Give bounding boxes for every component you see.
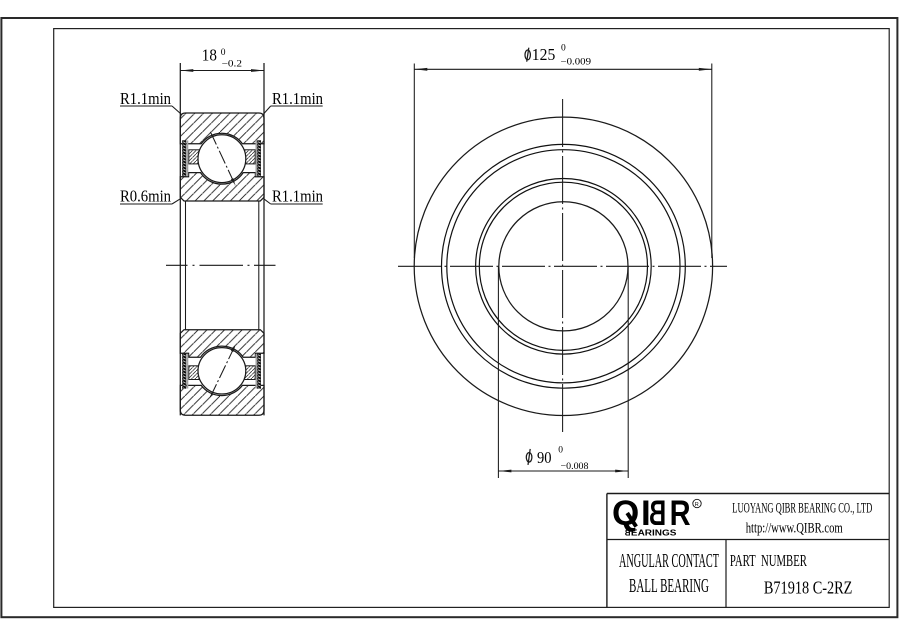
svg-text:B: B — [649, 495, 666, 534]
svg-text:ANGULAR CONTACT: ANGULAR CONTACT — [619, 550, 719, 572]
svg-text:R1.1min: R1.1min — [120, 89, 171, 108]
svg-text:B: B — [625, 529, 631, 538]
svg-text:B71918 C-2RZ: B71918 C-2RZ — [764, 578, 853, 598]
svg-text:0: 0 — [221, 48, 226, 58]
svg-text:http://www.QIBR.com: http://www.QIBR.com — [746, 521, 843, 537]
svg-text:−0.009: −0.009 — [561, 58, 592, 68]
svg-text:R1.1min: R1.1min — [272, 89, 323, 108]
svg-text:R: R — [670, 493, 691, 532]
svg-text:0: 0 — [561, 43, 566, 53]
svg-text:125: 125 — [532, 45, 556, 64]
svg-text:0: 0 — [558, 446, 563, 456]
svg-text:LUOYANG QIBR BEARING CO., LTD: LUOYANG QIBR BEARING CO., LTD — [732, 501, 872, 517]
svg-text:R: R — [695, 502, 699, 508]
svg-text:EARINGS: EARINGS — [631, 529, 677, 538]
svg-text:18: 18 — [202, 45, 217, 64]
svg-text:90: 90 — [537, 448, 552, 467]
svg-text:R0.6min: R0.6min — [120, 186, 171, 205]
svg-text:−0.2: −0.2 — [222, 59, 243, 69]
svg-text:PART NUMBER: PART NUMBER — [730, 551, 807, 570]
svg-text:BALL BEARING: BALL BEARING — [629, 575, 709, 597]
svg-text:R1.1min: R1.1min — [272, 186, 323, 205]
svg-text:−0.008: −0.008 — [561, 462, 589, 472]
